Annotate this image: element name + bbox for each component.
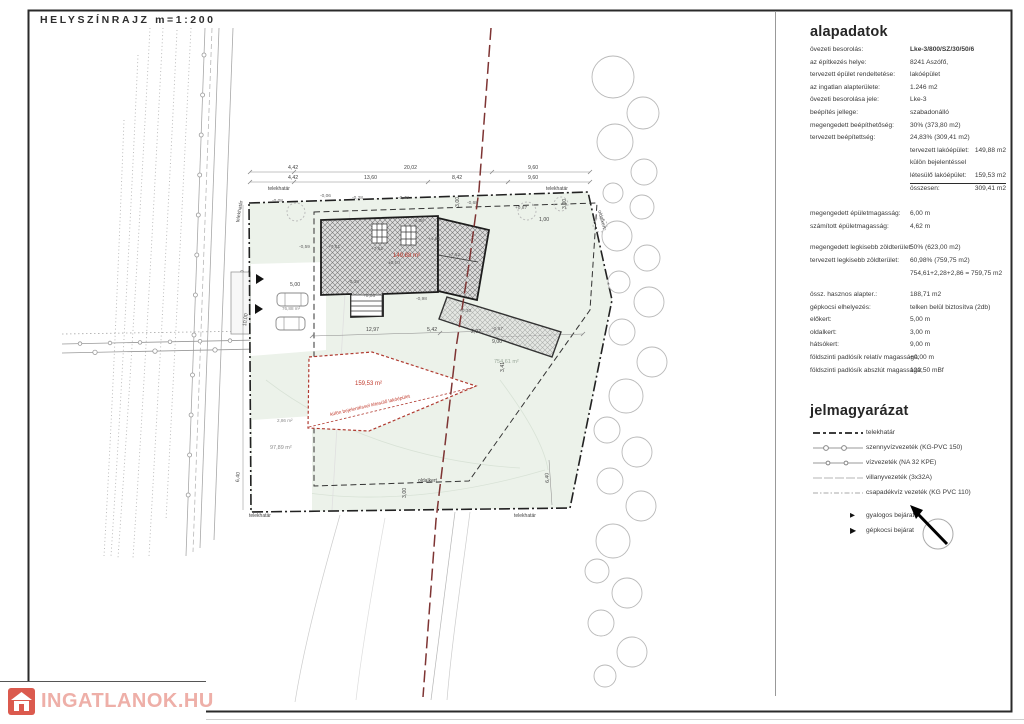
legend-item: csapadékvíz vezeték (KG PVC 110) bbox=[810, 485, 1006, 500]
info-row: földszinti padlósík abszlút magassága:12… bbox=[810, 367, 1006, 380]
entry-steps bbox=[351, 295, 382, 316]
info-row: az építkezés helye:8241 Aszófő, bbox=[810, 59, 1006, 72]
info-row: oldalkert:3,00 m bbox=[810, 329, 1006, 342]
info-row: övezeti besorolása jele:Lke-3 bbox=[810, 96, 1006, 109]
info-row: össz. hasznos alapter.:188,71 m2 bbox=[810, 291, 1006, 304]
legend: jelmagyarázat telekhatárszennyvízvezeték… bbox=[810, 403, 1006, 538]
info-row: tervezett épület rendeltetése:lakóépület bbox=[810, 71, 1006, 84]
legend-item: vízvezeték (NA 32 KPE) bbox=[810, 455, 1006, 470]
basic-data-subrows: tervezett lakóépület:149,88 m2külön beje… bbox=[810, 147, 1006, 197]
legend-item: ▶gépkocsi bejárat bbox=[810, 523, 1006, 538]
site-plan-sheet: HELYSZÍNRAJZ m=1:200 149,88 m²159,53 m²k… bbox=[0, 0, 1024, 724]
info-row: földszinti padlósík relatív magassága:+0… bbox=[810, 354, 1006, 367]
info-row: létesülő lakóépület:159,53 m2 bbox=[810, 172, 1006, 185]
basic-data-heading: alapadatok bbox=[810, 24, 1006, 40]
legend-items: telekhatárszennyvízvezeték (KG-PVC 150)v… bbox=[810, 425, 1006, 500]
neighbor-structure bbox=[231, 272, 250, 334]
info-row: övezeti besorolás:Lke-3/800/SZ/30/50/6 bbox=[810, 46, 1006, 59]
info-row: tervezett beépítettség:24,83% (309,41 m2… bbox=[810, 134, 1006, 147]
contour-lines bbox=[104, 28, 191, 558]
info-row: megengedett beépíthetőség:30% (373,80 m2… bbox=[810, 122, 1006, 135]
entrance-arrow-icon: ▶ bbox=[850, 527, 866, 535]
info-row: hátsókert:9,00 m bbox=[810, 341, 1006, 354]
info-row: összesen:309,41 m2 bbox=[810, 185, 1006, 198]
info-row: külön bejelentéssel bbox=[810, 159, 1006, 172]
misc-rows: össz. hasznos alapter.:188,71 m2gépkocsi… bbox=[810, 291, 1006, 379]
info-row: 754,61+2,28+2,86 = 759,75 m2 bbox=[810, 270, 1006, 283]
entrance-arrow-icon: ▶ bbox=[850, 513, 866, 520]
info-row: beépítés jellege:szabadonálló bbox=[810, 109, 1006, 122]
watermark-text: INGATLANOK.HU bbox=[41, 690, 214, 713]
legend-item: telekhatár bbox=[810, 425, 1006, 440]
basic-data-rows: övezeti besorolás:Lke-3/800/SZ/30/50/6az… bbox=[810, 46, 1006, 147]
legend-item: villanyvezeték (3x32A) bbox=[810, 470, 1006, 485]
page-title: HELYSZÍNRAJZ m=1:200 bbox=[40, 14, 216, 26]
info-panel: alapadatok övezeti besorolás:Lke-3/800/S… bbox=[810, 24, 1006, 538]
info-row: gépkocsi elhelyezés:telken belül biztosí… bbox=[810, 304, 1006, 317]
info-row: előkert:5,00 m bbox=[810, 316, 1006, 329]
green-area-rows: megengedett legkisebb zöldterület:50% (6… bbox=[810, 244, 1006, 282]
height-rows: megengedett épületmagasság:6,00 mszámíto… bbox=[810, 210, 1006, 235]
legend-heading: jelmagyarázat bbox=[810, 403, 1006, 419]
watermark[interactable]: INGATLANOK.HU bbox=[0, 681, 206, 720]
info-row: megengedett legkisebb zöldterület:50% (6… bbox=[810, 244, 1006, 257]
legend-item: ▶gyalogos bejárat bbox=[810, 508, 1006, 523]
info-row: számított épületmagasság:4,62 m bbox=[810, 223, 1006, 236]
house-logo-icon bbox=[8, 688, 35, 715]
garden-area-9789 bbox=[252, 416, 312, 512]
info-row: az ingatlan alapterülete:1.246 m2 bbox=[810, 84, 1006, 97]
legend-arrow-items: ▶gyalogos bejárat▶gépkocsi bejárat bbox=[810, 508, 1006, 538]
legend-item: szennyvízvezeték (KG-PVC 150) bbox=[810, 440, 1006, 455]
info-row: tervezett lakóépület:149,88 m2 bbox=[810, 147, 1006, 160]
info-row: tervezett legkisebb zöldterület:60,98% (… bbox=[810, 257, 1006, 270]
info-row: megengedett épületmagasság:6,00 m bbox=[810, 210, 1006, 223]
